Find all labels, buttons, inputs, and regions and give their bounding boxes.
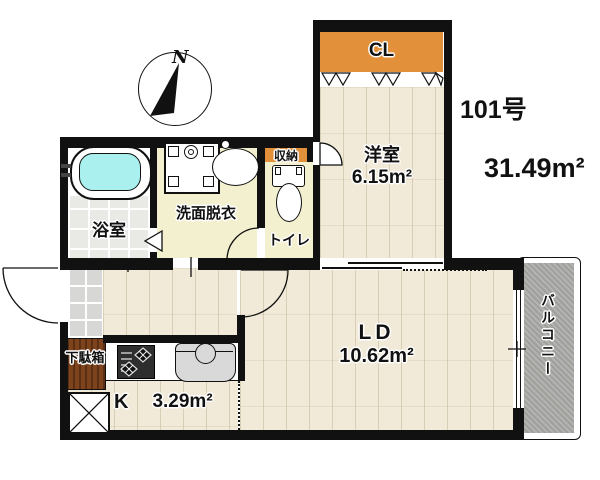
bathroom-label: 浴室 [68,216,150,240]
total-area: 31.49m² [484,153,585,184]
pan-corner [203,146,214,157]
toilet-bowl-icon [276,183,302,222]
balcony-label: バルコニー [538,293,558,378]
wall-western-left-lower [313,165,320,270]
kitchen-faucet-icon [195,343,216,364]
pan-corner [203,176,214,187]
ld-area: 10.62m² [339,345,414,368]
entrance-tile [68,268,103,338]
entrance-door-arc [3,268,58,323]
balcony-window-opening [513,290,524,408]
closet-label: CL [320,36,443,66]
sliding-door-panel-line [322,267,402,269]
kitchen-label-block: K 3.29m² [114,391,244,413]
unit-number: 101号 [460,90,527,126]
western-room-label-block: 洋室 6.15m² [320,141,444,189]
refrigerator-space-icon [68,392,110,434]
wall-bottom [60,430,524,440]
balcony-window-pane-line [516,290,517,408]
pan-drain-dot [188,149,194,155]
wall-kitchen-top [103,335,245,343]
sliding-door-track-dotted [403,269,487,271]
balcony-window-pane-line [520,290,521,408]
kitchen-label: K [114,391,128,414]
wall-mid-a [60,258,173,270]
pan-corner [168,146,179,157]
bath-faucet-icon [61,164,71,168]
floor-plan: N CL 洋室 6.15m² 101号 31.49m² 浴室 洗面脱衣 収納 ト… [0,0,600,480]
closet-folding-door-track [320,72,443,87]
bath-faucet-icon [61,173,71,177]
wall-western-right [444,32,452,258]
wall-western-left-upper [313,32,320,142]
western-door-opening [313,142,320,165]
north-compass: N [138,50,214,126]
wall-mid-b [198,258,320,270]
stove-icon [117,345,155,379]
toilet-tank-detail [275,167,281,175]
sink-icon [212,148,259,186]
bathtub-water [79,153,141,191]
shoe-cabinet-label: 下駄箱 [56,347,114,365]
pan-corner [168,176,179,187]
western-room-area: 6.15m² [352,167,412,189]
storage-label: 収納 [265,147,307,163]
ld-label-block: LD 10.62m² [240,320,513,368]
toilet-label: トイレ [264,230,314,250]
wall-ld-right-upper [513,262,524,290]
hallway-floor [103,268,237,335]
ld-label: LD [359,321,395,345]
washroom-label: 洗面脱衣 [153,201,259,223]
sink-faucet-icon [221,140,230,149]
western-room-label: 洋室 [364,141,400,167]
compass-north-label: N [172,47,188,68]
wall-top-closet [313,20,452,32]
wall-ld-right-lower [513,408,524,432]
wall-left-lower [60,322,68,440]
kitchen-area: 3.29m² [152,391,212,413]
sliding-door-panel-line [348,262,443,264]
toilet-tank-detail [296,167,302,175]
